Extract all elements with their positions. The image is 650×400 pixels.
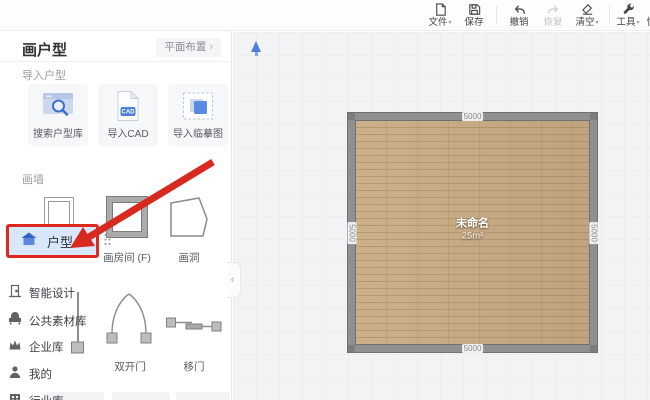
undo-label: 撤销 <box>509 17 528 28</box>
toolbar-divider <box>496 6 497 24</box>
tools-label: 工具 <box>616 17 635 28</box>
search-library-card[interactable]: 搜索户型库 <box>28 84 88 146</box>
plan-layout-button[interactable]: 平面布置› <box>156 38 221 57</box>
toolbar-divider <box>609 6 610 24</box>
nav-enterprise-library-label: 企业库 <box>29 339 64 355</box>
draw-opening-tool[interactable] <box>168 196 210 243</box>
floorplan-room[interactable]: 5000 5000 5000 5000 未命名 25m² <box>348 113 597 352</box>
crown-icon <box>8 338 22 357</box>
file-button[interactable]: 文件▾ <box>423 0 457 30</box>
user-icon <box>8 365 22 384</box>
import-section-title: 导入户型 <box>22 67 66 83</box>
nav-huxing-label: 户型 <box>47 232 73 251</box>
import-cad-card[interactable]: CAD 导入CAD <box>98 84 158 146</box>
room-name: 未命名 <box>456 215 489 231</box>
import-trace-label: 导入临摹图 <box>173 125 223 140</box>
nav-item-mine[interactable]: 我的 <box>8 362 52 386</box>
wall-corner <box>348 113 355 120</box>
house-icon <box>20 231 38 252</box>
clear-label: 清空 <box>575 17 594 28</box>
north-indicator-icon <box>251 41 261 52</box>
svg-text:CAD: CAD <box>122 110 136 116</box>
divider <box>0 61 232 62</box>
plan-layout-label: 平面布置 <box>164 41 206 53</box>
nav-item-industry-library[interactable]: 行业库 <box>8 389 64 400</box>
top-toolbar: 文件▾ 保存 撤销 恢复 清空▾ <box>0 0 650 31</box>
room-area: 25m² <box>456 231 489 242</box>
room-label: 未命名 25m² <box>456 215 489 242</box>
chevron-right-icon: › <box>209 41 213 53</box>
nav-mine-label: 我的 <box>29 366 52 382</box>
clipped-tile <box>176 392 230 400</box>
draw-room-label: 画房间 (F) <box>92 250 162 265</box>
nav-item-enterprise-library[interactable]: 企业库 <box>8 335 64 359</box>
left-panel: 画户型 平面布置› 导入户型 搜索户型库 CAD 导入CAD 导入临摹图 画墙 <box>0 31 232 400</box>
clear-button[interactable]: 清空▾ <box>570 0 604 30</box>
clipped-tile <box>112 392 170 400</box>
trace-image-icon <box>182 90 214 127</box>
wall-corner <box>590 113 597 120</box>
cad-file-icon: CAD <box>115 90 141 127</box>
app-window: 文件▾ 保存 撤销 恢复 清空▾ <box>0 0 650 400</box>
nav-public-library-label: 公共素材库 <box>29 313 87 329</box>
file-icon <box>433 2 448 17</box>
nav-item-smart-design[interactable]: 智能设计 <box>8 281 75 305</box>
tools-button[interactable]: 工具▾ <box>615 0 641 30</box>
file-label: 文件 <box>428 17 447 28</box>
draw-opening-label: 画洞 <box>160 250 218 265</box>
save-label: 保存 <box>464 17 483 28</box>
nav-item-public-library[interactable]: 公共素材库 <box>8 309 87 333</box>
undo-button[interactable]: 撤销 <box>502 0 536 30</box>
panel-title: 画户型 <box>22 39 67 60</box>
eraser-icon <box>580 2 595 17</box>
undo-icon <box>512 2 527 17</box>
import-trace-card[interactable]: 导入临摹图 <box>168 84 228 146</box>
wall-section-title: 画墙 <box>22 171 44 187</box>
redo-label: 恢复 <box>543 17 562 28</box>
collapse-panel-button[interactable]: ‹ <box>227 262 241 298</box>
import-cad-label: 导入CAD <box>107 125 148 140</box>
save-button[interactable]: 保存 <box>457 0 491 30</box>
drag-handle-icon[interactable] <box>103 233 112 251</box>
wrench-icon <box>621 2 636 17</box>
search-library-icon <box>41 90 75 125</box>
dimension-right[interactable]: 5000 <box>589 222 598 244</box>
search-library-label: 搜索户型库 <box>33 125 83 140</box>
smart-design-icon <box>8 284 22 303</box>
sliding-door-tool[interactable] <box>166 313 222 340</box>
double-door-tool[interactable] <box>106 289 152 350</box>
dropdown-caret-icon: ▾ <box>596 18 599 29</box>
sofa-icon <box>8 312 22 331</box>
dropdown-caret-icon: ▾ <box>637 18 640 29</box>
dimension-left[interactable]: 5000 <box>347 222 356 244</box>
chevron-left-icon: ‹ <box>231 274 235 286</box>
sliding-door-label: 移门 <box>168 359 220 374</box>
shortcut-button[interactable]: 快捷键 <box>641 0 650 30</box>
redo-icon <box>546 2 561 17</box>
dimension-top[interactable]: 5000 <box>462 112 484 121</box>
dimension-bottom[interactable]: 5000 <box>462 344 484 353</box>
wall-corner <box>590 345 597 352</box>
nav-industry-library-label: 行业库 <box>29 393 64 400</box>
double-door-label: 双开门 <box>100 359 160 374</box>
drawing-canvas[interactable]: 5000 5000 5000 5000 未命名 25m² <box>233 32 650 400</box>
redo-button[interactable]: 恢复 <box>536 0 570 30</box>
dropdown-caret-icon: ▾ <box>449 18 452 29</box>
nav-item-huxing[interactable]: 户型 <box>6 224 99 258</box>
draw-room-tool[interactable] <box>107 197 147 237</box>
save-icon <box>467 2 482 17</box>
building-icon <box>8 392 22 400</box>
nav-smart-design-label: 智能设计 <box>29 285 75 301</box>
wall-corner <box>348 345 355 352</box>
